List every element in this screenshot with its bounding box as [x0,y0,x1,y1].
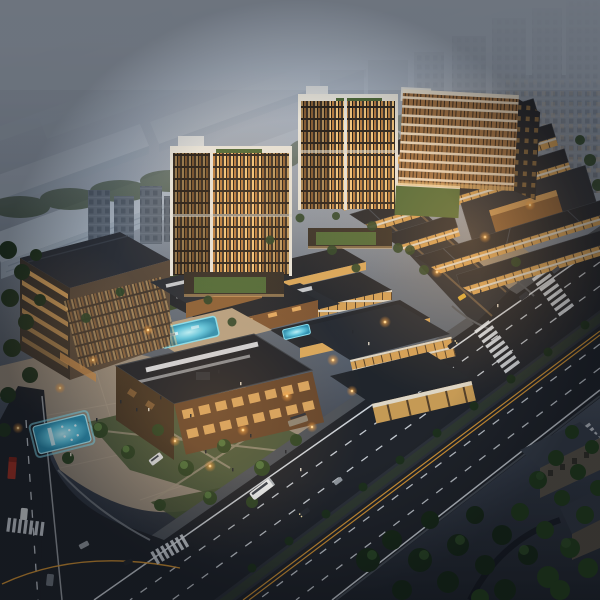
aerial-rendering [0,0,600,600]
atmosphere-overlays [0,0,600,600]
rendering-canvas [0,0,600,600]
